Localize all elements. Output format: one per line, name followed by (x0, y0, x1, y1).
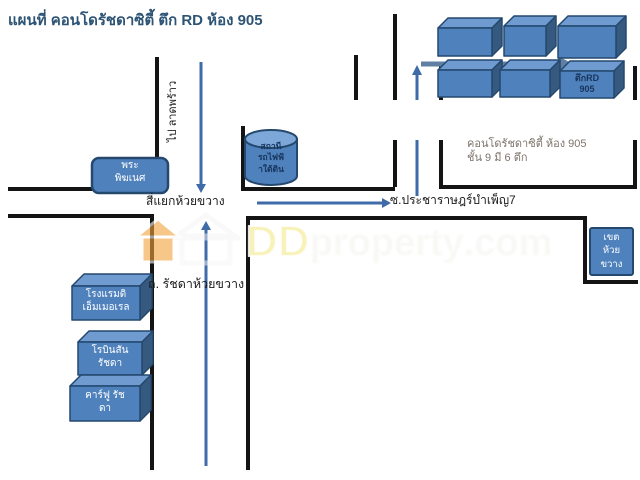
white-band (340, 100, 640, 140)
route-arrow-up-south (201, 221, 211, 466)
south-road-label: ถ. รัชดาห้วยขวาง (148, 274, 244, 294)
emerald-hotel-label: โรงแรมดิ เอ็มเมอเรล (72, 289, 140, 314)
mrt-label-line3: าใต้ดิน (245, 164, 297, 175)
rd-building-label: ตึกRD 905 (560, 73, 614, 96)
mrt-label: สถานี รถไฟฟ้ าใต้ดิน (245, 141, 297, 175)
building-box-1 (438, 18, 502, 56)
emerald-hotel-line2: เอ็มเมอเรล (72, 302, 140, 315)
arrowhead-up-condo-icon (412, 65, 422, 75)
mrt-label-line1: สถานี (245, 141, 297, 152)
carrefour-line1: คาร์ฟู รัช (70, 390, 140, 403)
condo-annotation-line1: คอนโดรัชดาซิตี้ ห้อง 905 (467, 137, 587, 151)
building-box-5 (500, 60, 560, 97)
arrowhead-up-icon (201, 221, 211, 230)
carrefour-label: คาร์ฟู รัช ดา (70, 390, 140, 415)
robinson-label: โรบินสัน รัชดา (78, 345, 142, 370)
road-soi-south-edge (248, 218, 638, 470)
district-office-line3: ขวาง (590, 258, 633, 271)
district-office-label: เขต ห้วย ขวาง (590, 231, 633, 271)
carrefour-line2: ดา (70, 403, 140, 416)
emerald-hotel-line1: โรงแรมดิ (72, 289, 140, 302)
robinson-line1: โรบินสัน (78, 345, 142, 358)
shrine-label-line2: พิฆเนศ (92, 173, 168, 186)
building-box-2 (504, 16, 556, 56)
intersection-label: สี่แยกห้วยขวาง (146, 192, 225, 211)
rd-building-label-line2: 905 (560, 84, 614, 95)
robinson-line2: รัชดา (78, 358, 142, 371)
mrt-label-line2: รถไฟฟ้ (245, 152, 297, 163)
rd-building-label-line1: ตึกRD (560, 73, 614, 84)
district-office-line1: เขต (590, 231, 633, 244)
building-box-3 (558, 16, 626, 58)
map-screenshot: DD property .com แผนที่ คอนโดรัชดาซิตี้ … (0, 0, 640, 480)
shrine-label-line1: พระ (92, 160, 168, 173)
district-office-line2: ห้วย (590, 244, 633, 257)
route-arrow-down (196, 62, 206, 193)
building-box-4 (438, 60, 502, 97)
condo-annotation-line2: ชั้น 9 มี 6 ตึก (467, 151, 587, 165)
route-arrow-right-soi (257, 198, 391, 208)
north-direction-label: ไป ลาดพร้าว (163, 70, 181, 142)
condo-annotation: คอนโดรัชดาซิตี้ ห้อง 905 ชั้น 9 มี 6 ตึก (467, 137, 587, 165)
map-title: แผนที่ คอนโดรัชดาซิตี้ ตึก RD ห้อง 905 (8, 8, 263, 32)
shrine-label: พระ พิฆเนศ (92, 160, 168, 185)
soi-label: ซ.ประชาราษฎร์บำเพ็ญ7 (390, 191, 516, 210)
